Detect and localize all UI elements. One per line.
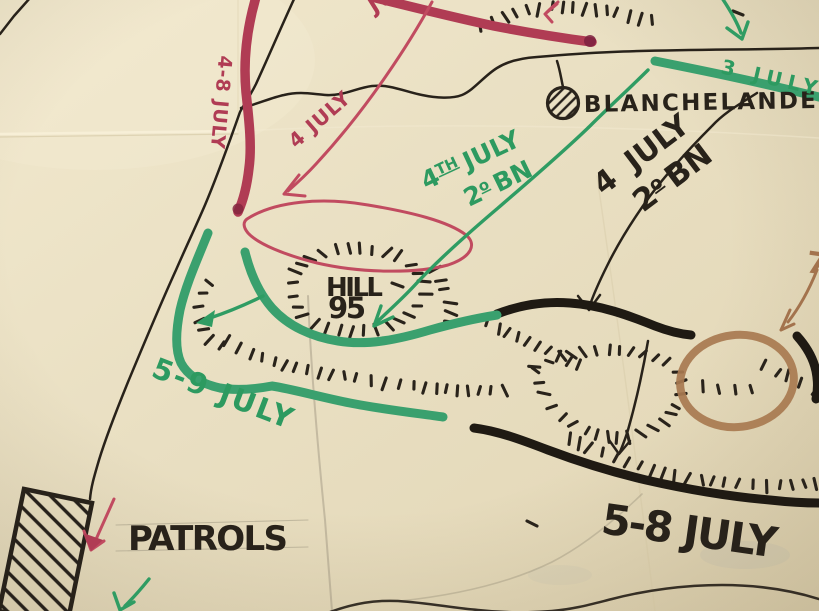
map-canvas: BLANCHELANDE HILL 95 4 JULY 2oBN 5-8 JUL… bbox=[0, 0, 819, 611]
red-line-end-blob2 bbox=[584, 35, 596, 47]
label-patrols: PATROLS bbox=[128, 519, 288, 559]
label-hill-height: 95 bbox=[328, 291, 366, 325]
red-line-end-blob bbox=[233, 204, 244, 215]
battle-map-photo: BLANCHELANDE HILL 95 4 JULY 2oBN 5-8 JUL… bbox=[0, 0, 819, 611]
blanchelande-symbol bbox=[548, 88, 579, 119]
